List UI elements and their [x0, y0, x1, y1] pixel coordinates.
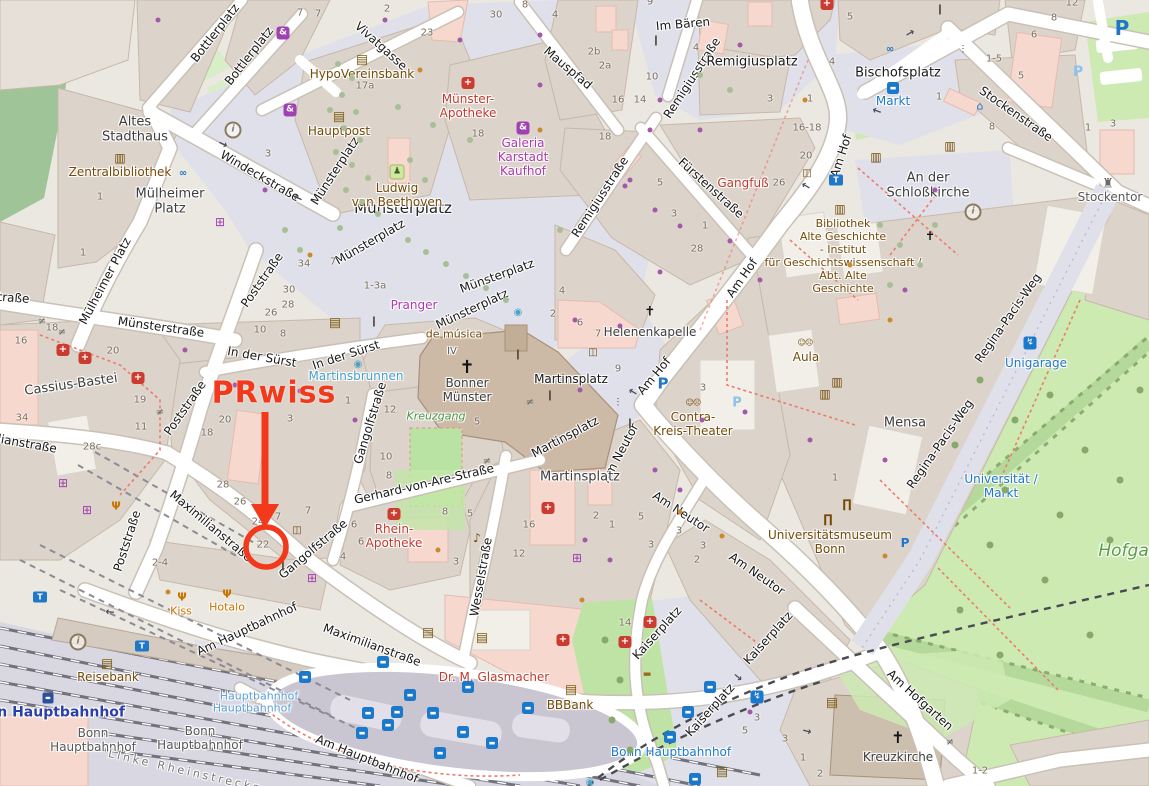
- house-number: 1: [1085, 123, 1091, 134]
- house-number: 26: [234, 497, 247, 508]
- house-number: 10: [254, 325, 267, 336]
- pharmacy-icon: +: [462, 77, 475, 89]
- taxi-icon: T: [829, 175, 843, 186]
- map-dot: [580, 598, 585, 603]
- taxi-icon: T: [135, 641, 149, 652]
- house-number: 18: [201, 428, 214, 439]
- house-number: 4: [829, 57, 835, 68]
- bank-icon: ▤: [333, 111, 345, 124]
- house-number: 28: [217, 480, 230, 491]
- bank-icon: ▤: [329, 317, 341, 330]
- map-dot: [578, 388, 583, 393]
- pharmacy-icon: +: [388, 508, 401, 520]
- fork-icon: Ψ: [222, 589, 231, 600]
- house-number: 2a: [599, 61, 612, 72]
- map-label: Hofgarten: [1098, 541, 1149, 561]
- parking-icon: P: [658, 377, 669, 392]
- map-label: Bonn Hauptbahnhof: [0, 705, 125, 722]
- map-dot: [627, 747, 634, 754]
- house-number: 3: [287, 414, 293, 425]
- gate-icon: ≠: [58, 328, 66, 338]
- tram-icon: ▬: [887, 82, 899, 94]
- map-dot: [297, 247, 303, 253]
- parking-icon: P: [1115, 18, 1130, 38]
- house-number: 18: [472, 129, 485, 140]
- monument-icon: ❙: [514, 350, 522, 360]
- house-number: 3: [648, 540, 654, 551]
- house-number: 3: [782, 734, 788, 745]
- postbox-icon: ◫: [292, 526, 301, 536]
- church-icon: ✝: [925, 230, 935, 242]
- map-dot: [658, 98, 663, 103]
- library-icon: ▥: [831, 376, 842, 388]
- house-number: 1-5: [986, 54, 1002, 65]
- map-label: Bottlerplatz: [188, 1, 242, 65]
- bus-icon: ▬: [391, 706, 403, 718]
- map-label: Stockentor: [1078, 190, 1143, 204]
- map-dot: [1002, 487, 1009, 494]
- map-label: BBBank: [547, 698, 594, 712]
- map-dot: [617, 677, 624, 684]
- pharmacy-icon: +: [644, 616, 657, 628]
- bag-icon: &: [277, 27, 290, 40]
- library-icon: ▥: [944, 140, 955, 152]
- library-icon: ▥: [819, 388, 830, 400]
- map-dot: [678, 510, 683, 515]
- house-number: 7: [305, 506, 311, 517]
- pharmacy-icon: +: [619, 636, 632, 648]
- house-number: 16: [15, 336, 28, 347]
- map-label: Gangolfstraße: [351, 380, 389, 465]
- house-number: 3: [676, 526, 682, 537]
- fork-icon: Ψ: [111, 501, 120, 512]
- map-dot: [848, 263, 853, 268]
- map-dot: [727, 87, 733, 93]
- map-label: Wesselstraße: [467, 536, 495, 617]
- map-dot: [608, 558, 613, 563]
- map-dot: [353, 418, 358, 423]
- museum-icon: ∏: [842, 498, 851, 510]
- pharmacy-icon: +: [79, 352, 92, 364]
- charging-icon: ↯: [751, 691, 764, 704]
- museum-icon: ∏: [823, 513, 832, 525]
- map-label: Bonn Hauptbahnhof: [611, 745, 731, 759]
- map-dot: [1042, 577, 1049, 584]
- map-dot: [977, 377, 984, 384]
- house-number: 1: [80, 248, 86, 259]
- map-dot: [1107, 537, 1114, 544]
- map-dot: [738, 43, 743, 48]
- map-label: Am Hof: [634, 354, 673, 397]
- map-dot: [349, 162, 355, 168]
- map-dot: [333, 149, 339, 155]
- map-label: Markt: [876, 94, 910, 108]
- bus-icon: ▬: [356, 727, 368, 739]
- map-dot: [658, 270, 663, 275]
- info-icon: i: [225, 122, 242, 139]
- house-number: 10: [380, 452, 393, 463]
- bank-icon: ▤: [716, 766, 728, 779]
- map-label: Mülheimer Platz: [76, 235, 134, 327]
- map-label: In der Sürst: [311, 337, 382, 372]
- map-dot: [602, 637, 609, 644]
- house-number: 11: [135, 422, 148, 433]
- house-number: 7: [595, 329, 601, 340]
- house-number: 26: [265, 308, 278, 319]
- house-number: 30: [283, 285, 296, 296]
- map-dot: [422, 177, 428, 183]
- map-label: Münsterstraße: [0, 286, 30, 306]
- house-number: 6: [351, 520, 357, 531]
- map-dot: [156, 18, 161, 23]
- house-number: 12: [513, 549, 526, 560]
- gate-icon: ≠: [526, 398, 534, 408]
- house-number: 6: [577, 318, 583, 329]
- map-label: Cassius-Bastei: [23, 371, 118, 399]
- map-dot: [353, 109, 359, 115]
- map-canvas[interactable]: BottlerplatzBottlerplatzVivatgasseMauspf…: [0, 0, 1149, 786]
- house-number: 6: [1031, 30, 1037, 41]
- house-number: 2: [817, 769, 823, 780]
- map-label: Im Bären: [655, 15, 710, 34]
- church-icon: ✝: [645, 306, 656, 319]
- pharmacy-icon: +: [57, 344, 70, 356]
- map-label: Am Hofgarten: [884, 667, 956, 734]
- map-dot: [339, 92, 345, 98]
- map-dot: [375, 211, 381, 217]
- map-dot: [308, 253, 313, 258]
- map-label: Linke Rheinstrecke: [107, 748, 264, 786]
- gate-icon: ≠: [156, 408, 164, 418]
- map-dot: [758, 278, 763, 283]
- house-number: 23: [421, 28, 434, 39]
- map-dot: [467, 137, 473, 143]
- map-dot: [1012, 417, 1019, 424]
- map-dot: [933, 188, 938, 193]
- house-number: 18: [46, 323, 59, 334]
- bus-icon: ▬: [486, 737, 498, 749]
- map-label: Am Neutor: [599, 421, 642, 485]
- map-label: Rhein- Apotheke: [366, 522, 423, 550]
- bicycle-icon: ∞: [886, 45, 894, 55]
- house-number: 2: [384, 4, 390, 15]
- bag-icon: &: [517, 122, 530, 135]
- monument-icon: ❙: [279, 561, 287, 571]
- house-number: 7: [297, 8, 303, 19]
- map-label: Am Neutor: [650, 488, 712, 535]
- house-number: 7: [330, 257, 336, 268]
- house-number: 1: [97, 192, 103, 203]
- map-dot: [1082, 447, 1089, 454]
- map-label: Am Hof: [827, 133, 854, 180]
- house-number: 5: [474, 417, 480, 428]
- house-number: 28: [691, 244, 704, 255]
- house-number: 9: [647, 0, 653, 8]
- map-label: Poststraße: [161, 378, 209, 438]
- bank-icon: ▤: [356, 54, 368, 67]
- house-number: 30: [490, 10, 503, 21]
- map-dot: [1057, 512, 1064, 519]
- map-label: Dr. M. Glasmacher: [439, 670, 549, 684]
- arrow-icon: →: [871, 104, 883, 117]
- house-number: 16: [523, 520, 536, 531]
- house-number: 6: [358, 537, 364, 548]
- house-number: 4: [340, 552, 346, 563]
- map-label: Kaiserplatz: [683, 681, 738, 740]
- house-number: 5: [467, 509, 473, 520]
- map-dot: [341, 125, 347, 131]
- bank-icon: ▤: [565, 684, 577, 697]
- map-dot: [463, 273, 469, 279]
- map-label: HypoVereinsbank: [310, 67, 415, 81]
- house-number: 8: [989, 122, 995, 133]
- map-label: Contra- Kreis-Theater: [653, 410, 732, 438]
- parking-lt-icon: P: [1073, 65, 1083, 79]
- map-label: Münsterstraße: [117, 314, 205, 340]
- house-number: 3: [700, 541, 706, 552]
- monument-icon: ❙: [546, 391, 554, 401]
- house-number: 14: [619, 618, 632, 629]
- map-dot: [483, 285, 489, 291]
- map-label: Galeria Karstadt Kaufhof: [498, 136, 549, 178]
- map-label: In der Sürst: [226, 344, 297, 370]
- map-dot: [728, 239, 733, 244]
- house-number: 1: [936, 92, 942, 103]
- house-number: 12: [384, 405, 397, 416]
- house-number: 24: [252, 517, 265, 528]
- map-label: Maximilianstraße: [167, 487, 255, 564]
- map-label: de música: [426, 329, 483, 342]
- map-dot: [357, 137, 363, 143]
- house-number: 5: [638, 512, 644, 523]
- map-label: Remigiusstraße: [569, 154, 632, 240]
- map-dot: [436, 548, 441, 553]
- map-label: Hotalo: [209, 602, 245, 615]
- library-icon: ▥: [870, 151, 881, 163]
- house-number: 3: [265, 149, 271, 160]
- map-dot: [997, 652, 1004, 659]
- map-dot: [503, 297, 509, 303]
- pharmacy-icon: +: [132, 372, 145, 384]
- house-number: 4: [693, 43, 699, 54]
- bank-icon: ▤: [422, 627, 434, 640]
- house-number: 9: [615, 364, 621, 375]
- map-label: Münsterplatz: [308, 134, 362, 207]
- map-label: Windeckstraße: [218, 148, 302, 205]
- house-number: 4: [559, 286, 565, 297]
- map-dot: [183, 348, 188, 353]
- map-dot: [957, 607, 964, 614]
- map-label: Martinsplatz: [534, 372, 608, 386]
- map-dot: [282, 227, 288, 233]
- house-number: 1: [702, 221, 708, 232]
- arrow-icon: →: [801, 724, 813, 737]
- house-number: 2: [550, 309, 556, 320]
- map-dot: [618, 324, 623, 329]
- bus-icon: ▬: [664, 731, 676, 743]
- map-label: Universität / Markt: [964, 472, 1037, 500]
- house-number: 3: [767, 94, 773, 105]
- map-label: An der Schloßkirche: [887, 171, 970, 202]
- house-number: 5: [1018, 71, 1024, 82]
- arrow-icon: →: [903, 26, 916, 40]
- house-number: 3: [671, 209, 677, 220]
- house-number: 17a: [356, 81, 375, 92]
- map-label: Am Hauptbahnhof: [314, 732, 421, 786]
- bus-icon: ▬: [457, 726, 469, 738]
- parking-icon: P: [901, 537, 910, 549]
- map-label: Universitätsmuseum Bonn: [768, 528, 892, 556]
- map-dot: [538, 128, 543, 133]
- house-number: 3: [453, 557, 459, 568]
- bus-icon: ▬: [689, 773, 701, 785]
- house-number: 20: [107, 346, 120, 357]
- gate-icon: ≠: [483, 457, 491, 467]
- map-dot: [887, 282, 893, 288]
- house-number: 19: [134, 395, 147, 406]
- memorial-icon: ♟: [390, 165, 405, 180]
- map-dot: [263, 188, 268, 193]
- map-dot: [349, 75, 355, 81]
- house-number: 16: [612, 95, 625, 106]
- bus-icon: ▬: [704, 681, 716, 693]
- map-dot: [443, 261, 449, 267]
- map-dot: [743, 410, 748, 415]
- arrow-icon: →: [291, 191, 304, 205]
- map-label: Regina-Pacis-Weg: [972, 271, 1044, 366]
- map-dot: [903, 288, 908, 293]
- library-icon: ▥: [114, 152, 125, 164]
- taxi-icon: T: [33, 592, 47, 603]
- house-number: 34: [298, 259, 311, 270]
- map-label: Remigiusplatz: [706, 54, 797, 69]
- bench-icon: ▬: [643, 671, 652, 680]
- map-dot: [1117, 477, 1124, 484]
- gate-icon: ≠: [946, 738, 954, 748]
- map-label: Münsterplatz: [354, 200, 452, 218]
- cart-icon: ⊞: [215, 216, 225, 228]
- bag-icon: &: [284, 104, 297, 117]
- bus-icon: ▬: [382, 719, 394, 731]
- map-dot: [166, 590, 171, 595]
- house-number: 1-2: [972, 766, 988, 777]
- map-label: Münsterplatz: [458, 256, 536, 296]
- map-label: Mülheimer Platz: [136, 187, 205, 218]
- postbox-icon: ◫: [588, 348, 597, 358]
- house-number: 3: [700, 383, 706, 394]
- house-number: 8: [1051, 13, 1057, 24]
- house-number: 1: [609, 520, 615, 531]
- bus-icon: ▬: [682, 706, 694, 718]
- map-label: Poststraße: [110, 509, 143, 574]
- cart-icon: ⊞: [572, 552, 582, 564]
- arrow-icon: →: [105, 606, 115, 618]
- map-label: Hauptbahnhof: [220, 691, 299, 704]
- map-dot: [233, 383, 238, 388]
- map-dot: [748, 710, 753, 715]
- map-label: Martinsbrunnen: [309, 369, 404, 383]
- map-label: Helenenkapelle: [604, 325, 697, 339]
- house-number: 1: [800, 753, 806, 764]
- house-number: 5: [657, 178, 663, 189]
- map-dot: [678, 488, 683, 493]
- map-dot: [298, 389, 303, 394]
- house-number: 3: [754, 713, 760, 724]
- map-label: Mensa: [884, 415, 926, 430]
- pharmacy-icon: +: [557, 634, 570, 646]
- arrow-icon: →: [799, 179, 812, 193]
- house-number: 26: [773, 178, 786, 189]
- map-dot: [405, 237, 411, 243]
- bus-icon: ▬: [404, 689, 416, 701]
- map-label: Fürstenstraße: [675, 155, 746, 221]
- house-number: 16-18: [792, 123, 821, 134]
- map-dot: [395, 104, 401, 110]
- house-number: 14: [634, 95, 647, 106]
- house-number: 7: [275, 512, 281, 523]
- map-dot: [917, 262, 923, 268]
- bank-icon: ▤: [476, 632, 488, 645]
- map-dot: [883, 458, 888, 463]
- map-label: Vivatgasse: [352, 19, 410, 73]
- bank-icon: ▤: [101, 658, 113, 671]
- map-dot: [648, 128, 653, 133]
- house-number: 2: [593, 511, 599, 522]
- map-label: Gangolfstraße: [276, 516, 350, 581]
- map-label: Kaiserplatz: [630, 604, 685, 663]
- map-dot: [897, 242, 903, 248]
- bus-icon: ▬: [434, 747, 446, 759]
- theatre-icon: ☺☹: [686, 399, 701, 407]
- signal-icon: ⋮: [614, 399, 623, 408]
- map-label: Martinsplatz: [529, 413, 601, 460]
- map-label: Poststraße: [238, 250, 286, 310]
- cart-icon: ⊞: [82, 504, 92, 516]
- map-dot: [359, 199, 365, 205]
- map-dot: [877, 222, 883, 228]
- map-label: Kreuzgang: [407, 411, 466, 424]
- parking-lt-icon: P: [732, 397, 742, 410]
- map-label: Bonn Hauptbahnhof: [50, 726, 136, 754]
- music-icon: ♪: [473, 532, 481, 544]
- theatre-icon: ☺☹: [798, 339, 813, 347]
- map-label: Bonn Hauptbahnhof: [157, 724, 243, 752]
- house-number: 2b: [588, 47, 601, 58]
- house-number: 5: [847, 12, 853, 23]
- map-label: Bischofsplatz: [855, 65, 941, 80]
- charging-icon: ↯: [1024, 337, 1037, 350]
- house-number: 22: [257, 540, 270, 551]
- house-number: 3: [1110, 119, 1116, 130]
- pharmacy-icon: +: [821, 0, 834, 10]
- map-dot: [720, 534, 725, 539]
- house-number: 7: [315, 9, 321, 20]
- map-dot: [653, 468, 658, 473]
- map-label: Kiss: [170, 606, 192, 619]
- map-label: IV: [447, 346, 457, 358]
- bus-icon: ▬: [299, 671, 311, 683]
- map-dot: [1087, 632, 1094, 639]
- map-dot: [803, 98, 808, 103]
- bus-icon: ▬: [362, 707, 374, 719]
- map-label: Aula: [793, 350, 820, 364]
- map-label: Pranger: [391, 298, 438, 312]
- map-label: Kreuzkirche: [863, 750, 933, 764]
- house-number: 8: [522, 0, 528, 11]
- gate-icon: ≠: [38, 317, 46, 327]
- map-label: Ludwig van Beethoven: [352, 181, 443, 209]
- map-label: Hauptpost: [308, 124, 370, 138]
